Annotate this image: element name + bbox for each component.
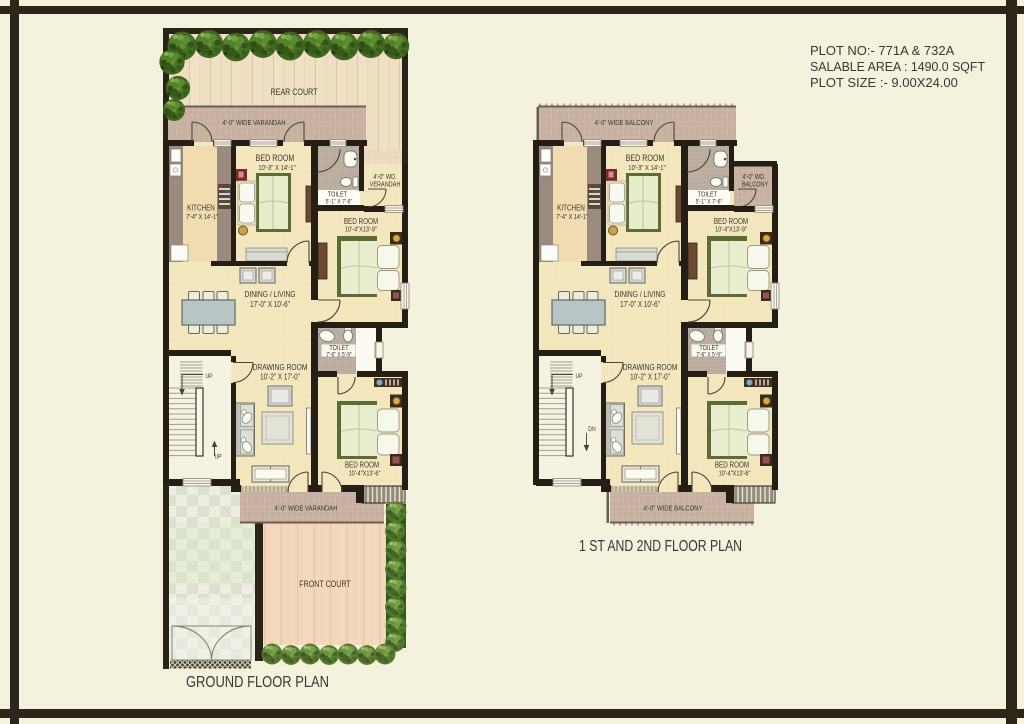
svg-text:KITCHEN: KITCHEN — [187, 203, 215, 213]
svg-text:SALABLE AREA : 1490.0 SQFT: SALABLE AREA : 1490.0 SQFT — [810, 59, 985, 74]
svg-text:10'-4"X13'-9": 10'-4"X13'-9" — [345, 226, 377, 234]
svg-text:5'-1" X 7'-6": 5'-1" X 7'-6" — [326, 199, 353, 206]
svg-text:10'-3" X 14'-1": 10'-3" X 14'-1" — [258, 164, 296, 172]
svg-text:UP: UP — [575, 374, 582, 381]
svg-text:UP: UP — [214, 454, 221, 461]
svg-text:BALCONY: BALCONY — [742, 181, 769, 189]
svg-text:7'-4" X 14'-1": 7'-4" X 14'-1" — [556, 213, 588, 221]
svg-text:5'-1" X 7'-6": 5'-1" X 7'-6" — [696, 199, 723, 206]
svg-text:BED ROOM: BED ROOM — [715, 460, 749, 470]
svg-text:GROUND FLOOR PLAN: GROUND FLOOR PLAN — [186, 674, 329, 691]
svg-text:10'-4"X13'-9": 10'-4"X13'-9" — [715, 226, 747, 234]
svg-text:DINING / LIVING: DINING / LIVING — [245, 289, 296, 299]
svg-text:10'-4"X13'-6": 10'-4"X13'-6" — [719, 470, 751, 478]
svg-text:7'-6" X 5'-9": 7'-6" X 5'-9" — [326, 352, 351, 359]
svg-text:TOILET: TOILET — [699, 344, 718, 352]
svg-text:BED ROOM: BED ROOM — [256, 153, 295, 163]
svg-text:BED ROOM: BED ROOM — [626, 153, 665, 163]
svg-text:VERANDAH: VERANDAH — [370, 181, 401, 189]
svg-text:4'-0" WIDE BALCONY: 4'-0" WIDE BALCONY — [595, 119, 654, 127]
svg-text:PLOT SIZE :- 9.00X24.00: PLOT SIZE :- 9.00X24.00 — [810, 75, 958, 90]
svg-text:7'-6" X 5'-9": 7'-6" X 5'-9" — [696, 352, 721, 359]
svg-text:DRAWING ROOM: DRAWING ROOM — [253, 362, 308, 372]
svg-text:TOILET: TOILET — [698, 191, 717, 199]
svg-text:DRAWING ROOM: DRAWING ROOM — [623, 362, 678, 372]
svg-text:1 ST AND 2ND FLOOR PLAN: 1 ST AND 2ND FLOOR PLAN — [579, 538, 742, 555]
svg-text:10'-2" X 17'-0": 10'-2" X 17'-0" — [630, 372, 670, 382]
svg-text:PLOT NO:- 771A & 732A: PLOT NO:- 771A & 732A — [810, 43, 955, 58]
svg-text:BED ROOM: BED ROOM — [714, 216, 748, 226]
svg-text:TOILET: TOILET — [328, 191, 347, 199]
svg-text:BED ROOM: BED ROOM — [344, 216, 378, 226]
svg-text:BED ROOM: BED ROOM — [345, 460, 379, 470]
svg-text:17'-0" X 10'-6": 17'-0" X 10'-6" — [620, 299, 660, 309]
svg-text:KITCHEN: KITCHEN — [557, 203, 585, 213]
svg-text:UP: UP — [205, 374, 212, 381]
svg-text:FRONT COURT: FRONT COURT — [299, 579, 351, 589]
svg-text:10'-4"X13'-6": 10'-4"X13'-6" — [349, 470, 381, 478]
svg-text:10'-3" X 14'-1": 10'-3" X 14'-1" — [628, 164, 666, 172]
svg-text:REAR COURT: REAR COURT — [271, 87, 318, 97]
svg-text:10'-2" X 17'-0": 10'-2" X 17'-0" — [260, 372, 300, 382]
svg-text:7'-4" X 14'-1": 7'-4" X 14'-1" — [186, 213, 218, 221]
svg-text:17'-0" X 10'-6": 17'-0" X 10'-6" — [250, 299, 290, 309]
svg-text:4'-0" WIDE BALCONY: 4'-0" WIDE BALCONY — [644, 505, 703, 513]
svg-text:4'-0" WIDE VARANDAH: 4'-0" WIDE VARANDAH — [275, 505, 338, 513]
svg-text:DINING / LIVING: DINING / LIVING — [615, 289, 666, 299]
svg-text:TOILET: TOILET — [329, 344, 348, 352]
svg-text:DN: DN — [588, 427, 595, 434]
svg-text:4'-0" WIDE VARANDAH: 4'-0" WIDE VARANDAH — [223, 119, 286, 127]
